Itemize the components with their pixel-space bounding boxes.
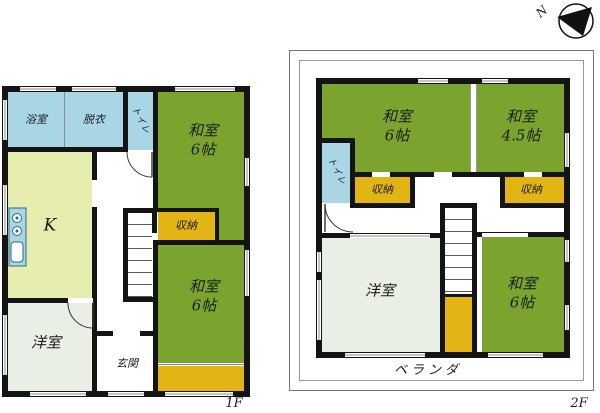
label-western-2f: 洋室 <box>365 282 395 301</box>
label-washitsu-upper-1f: 和室 6帖 <box>188 121 218 159</box>
stairs-2f <box>445 208 472 294</box>
window-1f-top-washitsu <box>175 87 235 91</box>
stairs-1f <box>128 213 152 297</box>
label-washitsu-ne-2f-size: 4.5帖 <box>502 126 541 145</box>
window-2f-left-b <box>317 280 321 340</box>
entrance-door-1f <box>108 392 144 396</box>
label-washitsu-nw-2f-name: 和室 <box>382 107 412 126</box>
floorplan-canvas: 浴室 脱衣 トイレ 和室 6帖 収納 和室 6帖 K 洋室 玄関 1F 和室 6… <box>0 0 600 413</box>
window-2f-western-top <box>350 234 430 238</box>
label-floor-1f: 1F <box>225 396 242 412</box>
label-washitsu-se-2f-size: 6帖 <box>507 293 537 312</box>
wall-closet-east-bottom-2f <box>500 203 564 208</box>
wall-closet-west-bottom-2f <box>350 203 415 208</box>
label-western-1f: 洋室 <box>31 334 61 353</box>
compass-icon <box>557 4 593 38</box>
label-entrance-1f: 玄関 <box>116 357 138 371</box>
wall-stairs-left-1f <box>123 208 128 302</box>
window-1f-bottom-oshiire <box>165 392 233 396</box>
window-1f-top-bath <box>20 87 56 91</box>
wall-stairs2-right <box>472 203 477 358</box>
label-washitsu-upper-1f-size: 6帖 <box>188 140 218 159</box>
window-1f-bottom-western <box>30 392 86 396</box>
label-washitsu-lower-1f-size: 6帖 <box>189 296 219 315</box>
wall-stairs2-closet-divider <box>445 294 472 297</box>
window-1f-left-kitchen <box>3 185 7 235</box>
door-gap-2f-a <box>372 172 390 177</box>
label-dressing-1f: 脱衣 <box>83 113 105 127</box>
window-2f-right-ne <box>565 133 569 167</box>
label-veranda-2f: ベランダ <box>394 363 462 379</box>
opening-2f-washitsu-se-top <box>482 233 528 237</box>
label-washitsu-upper-1f-name: 和室 <box>188 121 218 140</box>
wall-entrance-top-a-1f <box>97 331 113 336</box>
label-compass-north: N <box>533 3 551 21</box>
window-2f-bottom-se <box>488 353 543 357</box>
wall-western-right-1f <box>92 303 97 391</box>
oshiire-1f <box>158 366 244 391</box>
label-washitsu-nw-2f: 和室 6帖 <box>382 107 412 145</box>
label-washitsu-se-2f-name: 和室 <box>507 274 537 293</box>
wall-closet-right-1f <box>215 212 219 240</box>
label-washitsu-se-2f: 和室 6帖 <box>507 274 537 312</box>
wall-closet-top-1f <box>153 208 219 212</box>
wall-kitchen-right-upper-1f <box>92 152 97 180</box>
label-washitsu-lower-1f: 和室 6帖 <box>189 277 219 315</box>
label-washitsu-ne-2f-name: 和室 <box>502 107 541 126</box>
wall-stairs2-left <box>440 203 445 358</box>
fusuma-line-1f <box>158 364 244 365</box>
bath-dressing-divider-1f <box>64 92 65 147</box>
door-arc-toilet-1f <box>127 152 152 177</box>
wall-stairs-bottom-1f <box>123 297 157 302</box>
window-1f-right-upper <box>245 158 249 186</box>
wall-stairs2-top <box>440 203 477 208</box>
wall-mid-divider-1f <box>153 240 244 245</box>
label-closet-west-2f: 収納 <box>371 183 393 197</box>
fusuma-partition-2f <box>470 84 477 172</box>
window-1f-top-dressing <box>72 87 116 91</box>
window-2f-top-nw <box>418 79 448 83</box>
window-2f-left-a <box>317 252 321 272</box>
stairs-closet-2f <box>445 297 472 352</box>
label-washitsu-nw-2f-size: 6帖 <box>382 126 412 145</box>
window-2f-right-se-b <box>565 305 569 330</box>
wall-kitchen-bottom-a-1f <box>2 298 68 303</box>
window-1f-left-bath <box>3 100 7 140</box>
wall-washitsu-left-upper-1f <box>153 92 158 208</box>
wall-washitsu-left-lower-1f <box>153 245 158 391</box>
label-kitchen-1f: K <box>44 215 57 236</box>
label-floor-2f: 2F <box>570 396 587 412</box>
wall-entrance-top-b-1f <box>140 331 155 336</box>
label-closet-1f: 収納 <box>175 219 197 233</box>
window-2f-right-se-a <box>565 240 569 262</box>
wall-bath-bottom-1f <box>8 147 123 152</box>
door-gap-2f-b <box>434 172 452 177</box>
wall-stairs-right-1f <box>152 208 157 233</box>
window-2f-bottom-western <box>345 353 425 357</box>
wall-kitchen-right-lower-1f <box>92 207 97 298</box>
label-bath-1f: 浴室 <box>25 113 47 127</box>
wall-toilet-left-1f <box>123 92 128 152</box>
label-washitsu-lower-1f-name: 和室 <box>189 277 219 296</box>
window-1f-left-western <box>3 315 7 375</box>
wall-1f-right <box>244 86 250 397</box>
label-washitsu-ne-2f: 和室 4.5帖 <box>502 107 541 145</box>
door-gap-2f-c <box>524 172 542 177</box>
window-2f-top-ne <box>482 79 508 83</box>
label-closet-east-2f: 収納 <box>520 183 542 197</box>
window-1f-right-lower <box>245 250 249 296</box>
